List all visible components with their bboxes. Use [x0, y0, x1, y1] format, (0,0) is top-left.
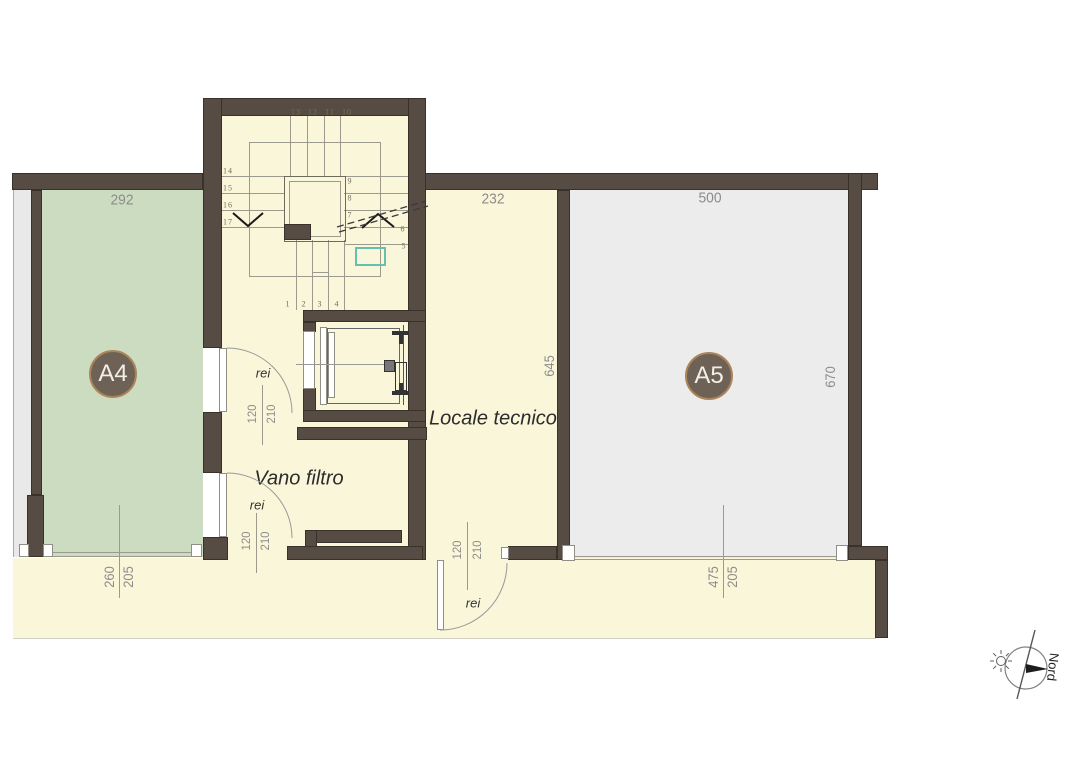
- jamb-mark: [562, 545, 575, 561]
- step-number: 2: [302, 300, 307, 309]
- wall-bottom-left-seg: [287, 546, 423, 560]
- stair-nosing-line: [312, 272, 329, 273]
- exterior-strip-floor: [13, 558, 876, 639]
- step-number: 6: [401, 225, 406, 234]
- locale-tecnico-label: Locale tecnico: [429, 408, 557, 431]
- stair-tread: [222, 227, 284, 228]
- stair-tread: [344, 210, 408, 211]
- stair-tread: [290, 116, 291, 176]
- lift-car-door-panel: [320, 327, 327, 405]
- jamb-mark: [191, 544, 202, 557]
- lift-car-door-panel: [328, 332, 335, 398]
- dim-a5-opening-w: 475: [705, 566, 721, 587]
- lift-rail-bracket: [399, 335, 403, 344]
- step-number: 3: [318, 300, 323, 309]
- stair-tread: [344, 244, 408, 245]
- wall-stair-right: [408, 98, 426, 560]
- wall-top-left: [12, 173, 203, 190]
- step-number: 15: [223, 184, 233, 193]
- lift-motor: [395, 362, 407, 391]
- step-number: 10: [342, 108, 352, 117]
- locale-tecnico-floor: [426, 190, 557, 558]
- stair-core-stub: [284, 224, 311, 240]
- step-number: 12: [308, 108, 318, 117]
- wall-a5-right: [848, 173, 862, 546]
- door-middle-rating: rei: [250, 498, 264, 513]
- dim-line-door-bottom: [467, 522, 468, 590]
- wall-stair-left-upper: [203, 98, 222, 348]
- stair-tread: [328, 240, 329, 310]
- wall-a4-left-pier: [27, 495, 44, 557]
- stair-tread: [344, 193, 408, 194]
- a5-opening-line: [575, 556, 838, 557]
- dim-a4-opening-w: 260: [101, 566, 117, 587]
- stair-tread: [296, 240, 297, 310]
- sun-icon: [990, 650, 1012, 672]
- wall-vano-inner: [305, 530, 402, 543]
- step-number: 1: [286, 300, 291, 309]
- step-number: 9: [348, 177, 353, 186]
- wall-below-lift: [297, 427, 427, 440]
- stair-tread: [324, 116, 325, 176]
- wall-stair-left-mid: [203, 412, 222, 473]
- door-top-rating: rei: [256, 366, 270, 381]
- wall-a4-left: [31, 190, 42, 495]
- jamb-mark: [836, 545, 848, 561]
- stair-tread: [344, 240, 345, 310]
- a5-opening-line: [575, 559, 838, 560]
- wall-bottom-right-seg: [508, 546, 557, 560]
- wall-stair-left-lower: [203, 537, 228, 560]
- door-leaf-top: [219, 348, 227, 412]
- lift-landing-door: [303, 331, 315, 389]
- room-a5-badge: A5: [685, 352, 733, 400]
- stair-tread: [222, 176, 284, 177]
- step-number: 7: [348, 211, 353, 220]
- step-number: 4: [335, 300, 340, 309]
- wall-top-right: [425, 173, 878, 190]
- dim-door-top-w: 120: [245, 404, 259, 423]
- dim-door-middle-h: 210: [258, 531, 272, 550]
- wall-lift-bottom: [303, 410, 426, 422]
- floor-plan: 292 232 500 645 670 260 205 475 205 120 …: [0, 0, 1076, 780]
- dim-door-top-h: 210: [264, 404, 278, 423]
- stair-tread: [312, 240, 313, 310]
- step-number: 16: [223, 201, 233, 210]
- dim-door-bottom-w: 120: [450, 540, 464, 559]
- door-leaf-bottom: [437, 560, 444, 630]
- dim-a5-width: 500: [698, 190, 721, 207]
- step-number: 5: [402, 242, 407, 251]
- compass-circle: [1005, 647, 1047, 689]
- dim-a5-opening-h: 205: [724, 566, 740, 587]
- dim-door-bottom-h: 210: [470, 540, 484, 559]
- equipment-outline: [355, 247, 386, 266]
- wall-lift-top: [303, 310, 426, 322]
- jamb-mark: [501, 547, 509, 559]
- stair-tread: [222, 193, 284, 194]
- compass-north-label: Nord: [1044, 652, 1062, 682]
- stair-tread: [344, 176, 408, 177]
- dim-a4-opening-h: 205: [120, 566, 136, 587]
- stair-tread: [307, 116, 308, 176]
- room-a4-badge-text: A4: [98, 360, 127, 388]
- door-leaf-middle: [219, 473, 227, 537]
- dim-lt-depth: 645: [541, 355, 557, 376]
- wall-right-lower: [875, 560, 888, 638]
- door-bottom-rating: rei: [466, 596, 480, 611]
- vano-filtro-label: Vano filtro: [254, 468, 343, 491]
- dim-a5-depth: 670: [822, 366, 838, 387]
- stair-tread: [340, 116, 341, 176]
- jamb-mark: [19, 544, 29, 557]
- wall-lift-left-b: [303, 388, 316, 412]
- dim-line-door-middle: [256, 513, 257, 573]
- wall-a5-left: [557, 190, 570, 560]
- room-a4-badge: A4: [89, 350, 137, 398]
- room-a5-badge-text: A5: [694, 362, 723, 390]
- step-number: 17: [223, 218, 233, 227]
- stair-tread: [344, 227, 408, 228]
- stair-nosing-line: [312, 276, 329, 277]
- dim-line-door-top: [262, 385, 263, 445]
- step-number: 14: [223, 167, 233, 176]
- lift-motor-box: [384, 360, 395, 372]
- jamb-mark: [43, 544, 53, 557]
- stair-tread: [222, 210, 284, 211]
- step-number: 11: [325, 108, 335, 117]
- dim-door-middle-w: 120: [239, 531, 253, 550]
- dim-lt-width: 232: [481, 191, 504, 208]
- step-number: 13: [291, 108, 301, 117]
- step-number: 8: [348, 194, 353, 203]
- dim-a4-width: 292: [110, 192, 133, 209]
- compass-axis: [1017, 630, 1035, 699]
- lift-centerline: [296, 364, 396, 365]
- wall-corner-jog: [848, 546, 888, 560]
